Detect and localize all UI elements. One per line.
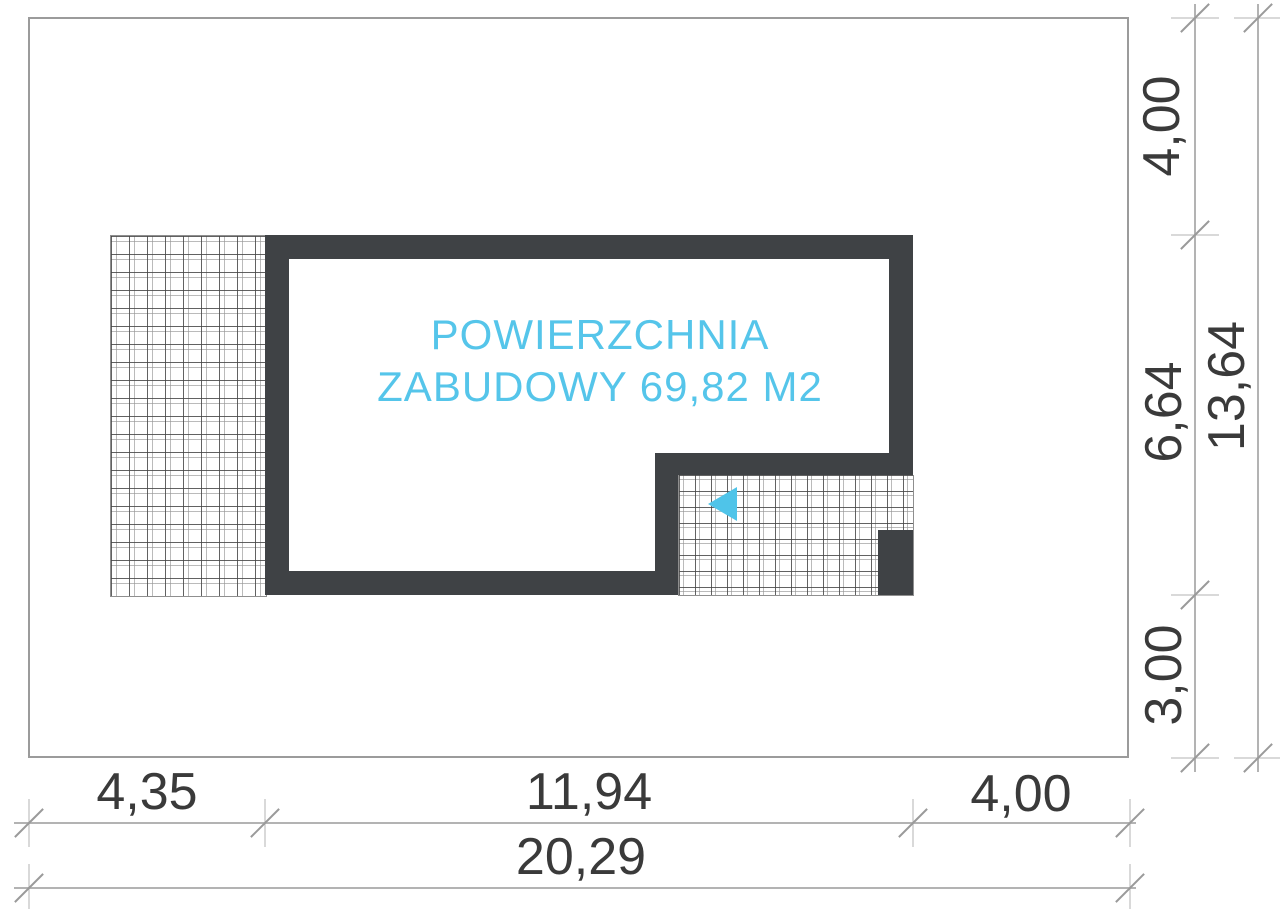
site-plan-drawing: POWIERZCHNIA ZABUDOWY 69,82 M2 4,35 11,9… <box>0 0 1280 909</box>
building-wall-notch-horizontal <box>655 453 913 475</box>
dimension-label-bottom-seg2: 11,94 <box>526 763 652 821</box>
building-area-label-line2: ZABUDOWY 69,82 M2 <box>377 361 823 413</box>
terrace-hatch-area <box>110 235 267 597</box>
dimension-line-right-total <box>1257 4 1259 772</box>
building-wall-right <box>889 235 913 475</box>
dimension-label-right-seg2: 6,64 <box>1135 361 1193 462</box>
dimension-line-bottom-segments <box>14 822 1136 824</box>
dimension-line-bottom-total <box>14 887 1136 889</box>
building-area-label: POWIERZCHNIA ZABUDOWY 69,82 M2 <box>377 309 823 413</box>
porch-pillar <box>878 530 913 595</box>
building-area-label-line1: POWIERZCHNIA <box>377 309 823 361</box>
dimension-label-right-seg3: 3,00 <box>1135 624 1193 725</box>
dimension-label-right-seg1: 4,00 <box>1133 75 1191 176</box>
entrance-arrow-icon <box>708 487 737 521</box>
building-wall-bottom <box>265 571 678 595</box>
dimension-label-right-total: 13,64 <box>1198 321 1256 451</box>
dimension-label-bottom-total: 20,29 <box>516 828 646 886</box>
dimension-label-bottom-seg1: 4,35 <box>96 763 197 821</box>
dimension-label-bottom-seg3: 4,00 <box>970 765 1071 823</box>
building-wall-left <box>265 235 289 595</box>
building-wall-top <box>265 235 913 259</box>
dimension-line-right-segments <box>1194 4 1196 772</box>
